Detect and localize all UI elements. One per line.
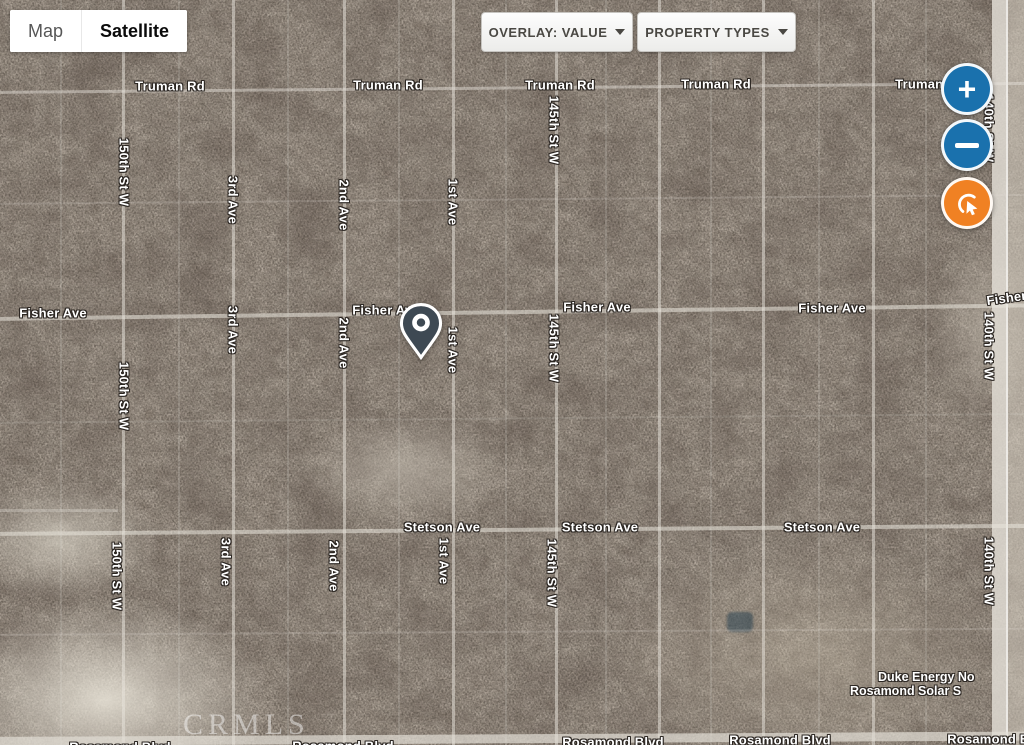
road-label-vertical: 145th St W (547, 96, 562, 164)
highway-140th-st (992, 0, 1006, 745)
road-label: Rosamond Blvd (729, 733, 831, 745)
road-line-vertical (232, 0, 235, 745)
plus-icon: + (958, 73, 977, 105)
road-line-horizontal (0, 82, 1024, 94)
terrain-patch (0, 480, 160, 600)
road-label-vertical: 150th St W (117, 362, 132, 430)
overlay-dropdown-label: OVERLAY: VALUE (489, 25, 608, 40)
road-line-vertical-faint (710, 0, 712, 745)
road-line-vertical (555, 0, 558, 745)
road-label-vertical: 150th St W (110, 542, 125, 610)
road-label: Rosamond Blvd (69, 740, 171, 745)
highway-edge-line (1006, 0, 1008, 745)
road-label: Rosamond Blvd (292, 739, 394, 745)
road-line-horizontal (0, 303, 1024, 321)
road-label-vertical: 2nd Ave (327, 540, 342, 591)
road-label-vertical: 3rd Ave (226, 306, 241, 354)
road-line-vertical-faint (60, 0, 62, 745)
road-line-horizontal (0, 524, 1024, 536)
road-label-vertical: 145th St W (545, 539, 560, 607)
road-label: Truman Rd (135, 79, 205, 94)
draw-on-map-button[interactable] (941, 177, 993, 229)
road-line-vertical-faint (605, 0, 607, 745)
property-marker-pin[interactable] (398, 302, 444, 360)
crmls-watermark: CRMLS (183, 708, 310, 742)
road-line-vertical-faint (178, 0, 180, 745)
terrain-light-strip (1006, 0, 1024, 745)
road-line-vertical (122, 0, 125, 745)
road-label: Stetson Ave (404, 520, 480, 535)
road-line-vertical (343, 0, 346, 745)
road-label: Rosamond Blvd (562, 735, 664, 745)
map-view-button[interactable]: Map (10, 10, 82, 52)
road-label-vertical: 150th St W (117, 138, 132, 206)
road-line-vertical-faint (398, 0, 400, 745)
road-line-vertical (872, 0, 875, 745)
road-label-vertical: 3rd Ave (226, 176, 241, 224)
terrain-patch (0, 600, 270, 745)
solar-site-feature (727, 612, 753, 632)
map-type-toggle: Map Satellite (10, 10, 187, 52)
property-types-dropdown[interactable]: PROPERTY TYPES (637, 12, 796, 52)
road-line-vertical (762, 0, 765, 745)
road-label: Fisher Ave (798, 301, 866, 316)
poi-label-duke-energy: Duke Energy No Rosamond Solar S (864, 671, 975, 698)
draw-cursor-icon (953, 189, 981, 217)
road-label-vertical: 3rd Ave (219, 538, 234, 586)
property-types-dropdown-label: PROPERTY TYPES (645, 25, 770, 40)
road-line-vertical (658, 0, 661, 745)
road-label-vertical: 140th St W (982, 537, 997, 605)
road-label: Fisher Ave (19, 306, 87, 321)
road-line-horizontal (0, 628, 1024, 636)
road-label-vertical: 1st Ave (437, 538, 452, 585)
road-label-vertical: 2nd Ave (337, 179, 352, 230)
pin-hole (414, 316, 427, 329)
road-line-vertical-faint (925, 0, 927, 745)
satellite-view-button[interactable]: Satellite (82, 10, 187, 52)
road-label-vertical: 1st Ave (446, 179, 461, 226)
road-label: Stetson Ave (784, 520, 860, 535)
road-line-horizontal (0, 731, 1024, 745)
road-line-vertical-faint (287, 0, 289, 745)
chevron-down-icon (615, 29, 625, 35)
terrain-patch (600, 540, 1020, 745)
chevron-down-icon (778, 29, 788, 35)
overlay-dropdown[interactable]: OVERLAY: VALUE (481, 12, 633, 52)
road-line-vertical (452, 0, 455, 745)
zoom-out-button[interactable] (941, 119, 993, 171)
terrain-patch (300, 415, 510, 525)
road-label: Truman Rd (681, 77, 751, 92)
zoom-in-button[interactable]: + (941, 63, 993, 115)
poi-line-1: Duke Energy No (878, 671, 975, 685)
satellite-map[interactable]: Truman RdTruman RdTruman RdTruman RdTrum… (0, 0, 1024, 745)
road-line-horizontal (0, 509, 118, 512)
road-label: Fisher Ave (986, 284, 1024, 308)
terrain-texture (0, 0, 1024, 745)
minus-icon (955, 143, 979, 148)
road-label: Fisher Ave (563, 300, 631, 315)
road-line-horizontal (0, 194, 1024, 205)
road-label: Stetson Ave (562, 520, 638, 535)
road-line-horizontal (0, 413, 1024, 424)
poi-line-2: Rosamond Solar S (850, 685, 975, 699)
road-label-vertical: 2nd Ave (337, 317, 352, 368)
road-label-vertical: 145th St W (547, 314, 562, 382)
terrain-patch (930, 230, 1024, 420)
road-label-vertical: 140th St W (982, 312, 997, 380)
road-label-vertical: 1st Ave (446, 327, 461, 374)
road-line-vertical-faint (505, 0, 507, 745)
road-label: Truman Rd (525, 78, 595, 93)
road-line-vertical-faint (818, 0, 820, 745)
road-label: Rosamond Blvd (947, 732, 1024, 745)
road-label: Truman Rd (353, 78, 423, 93)
